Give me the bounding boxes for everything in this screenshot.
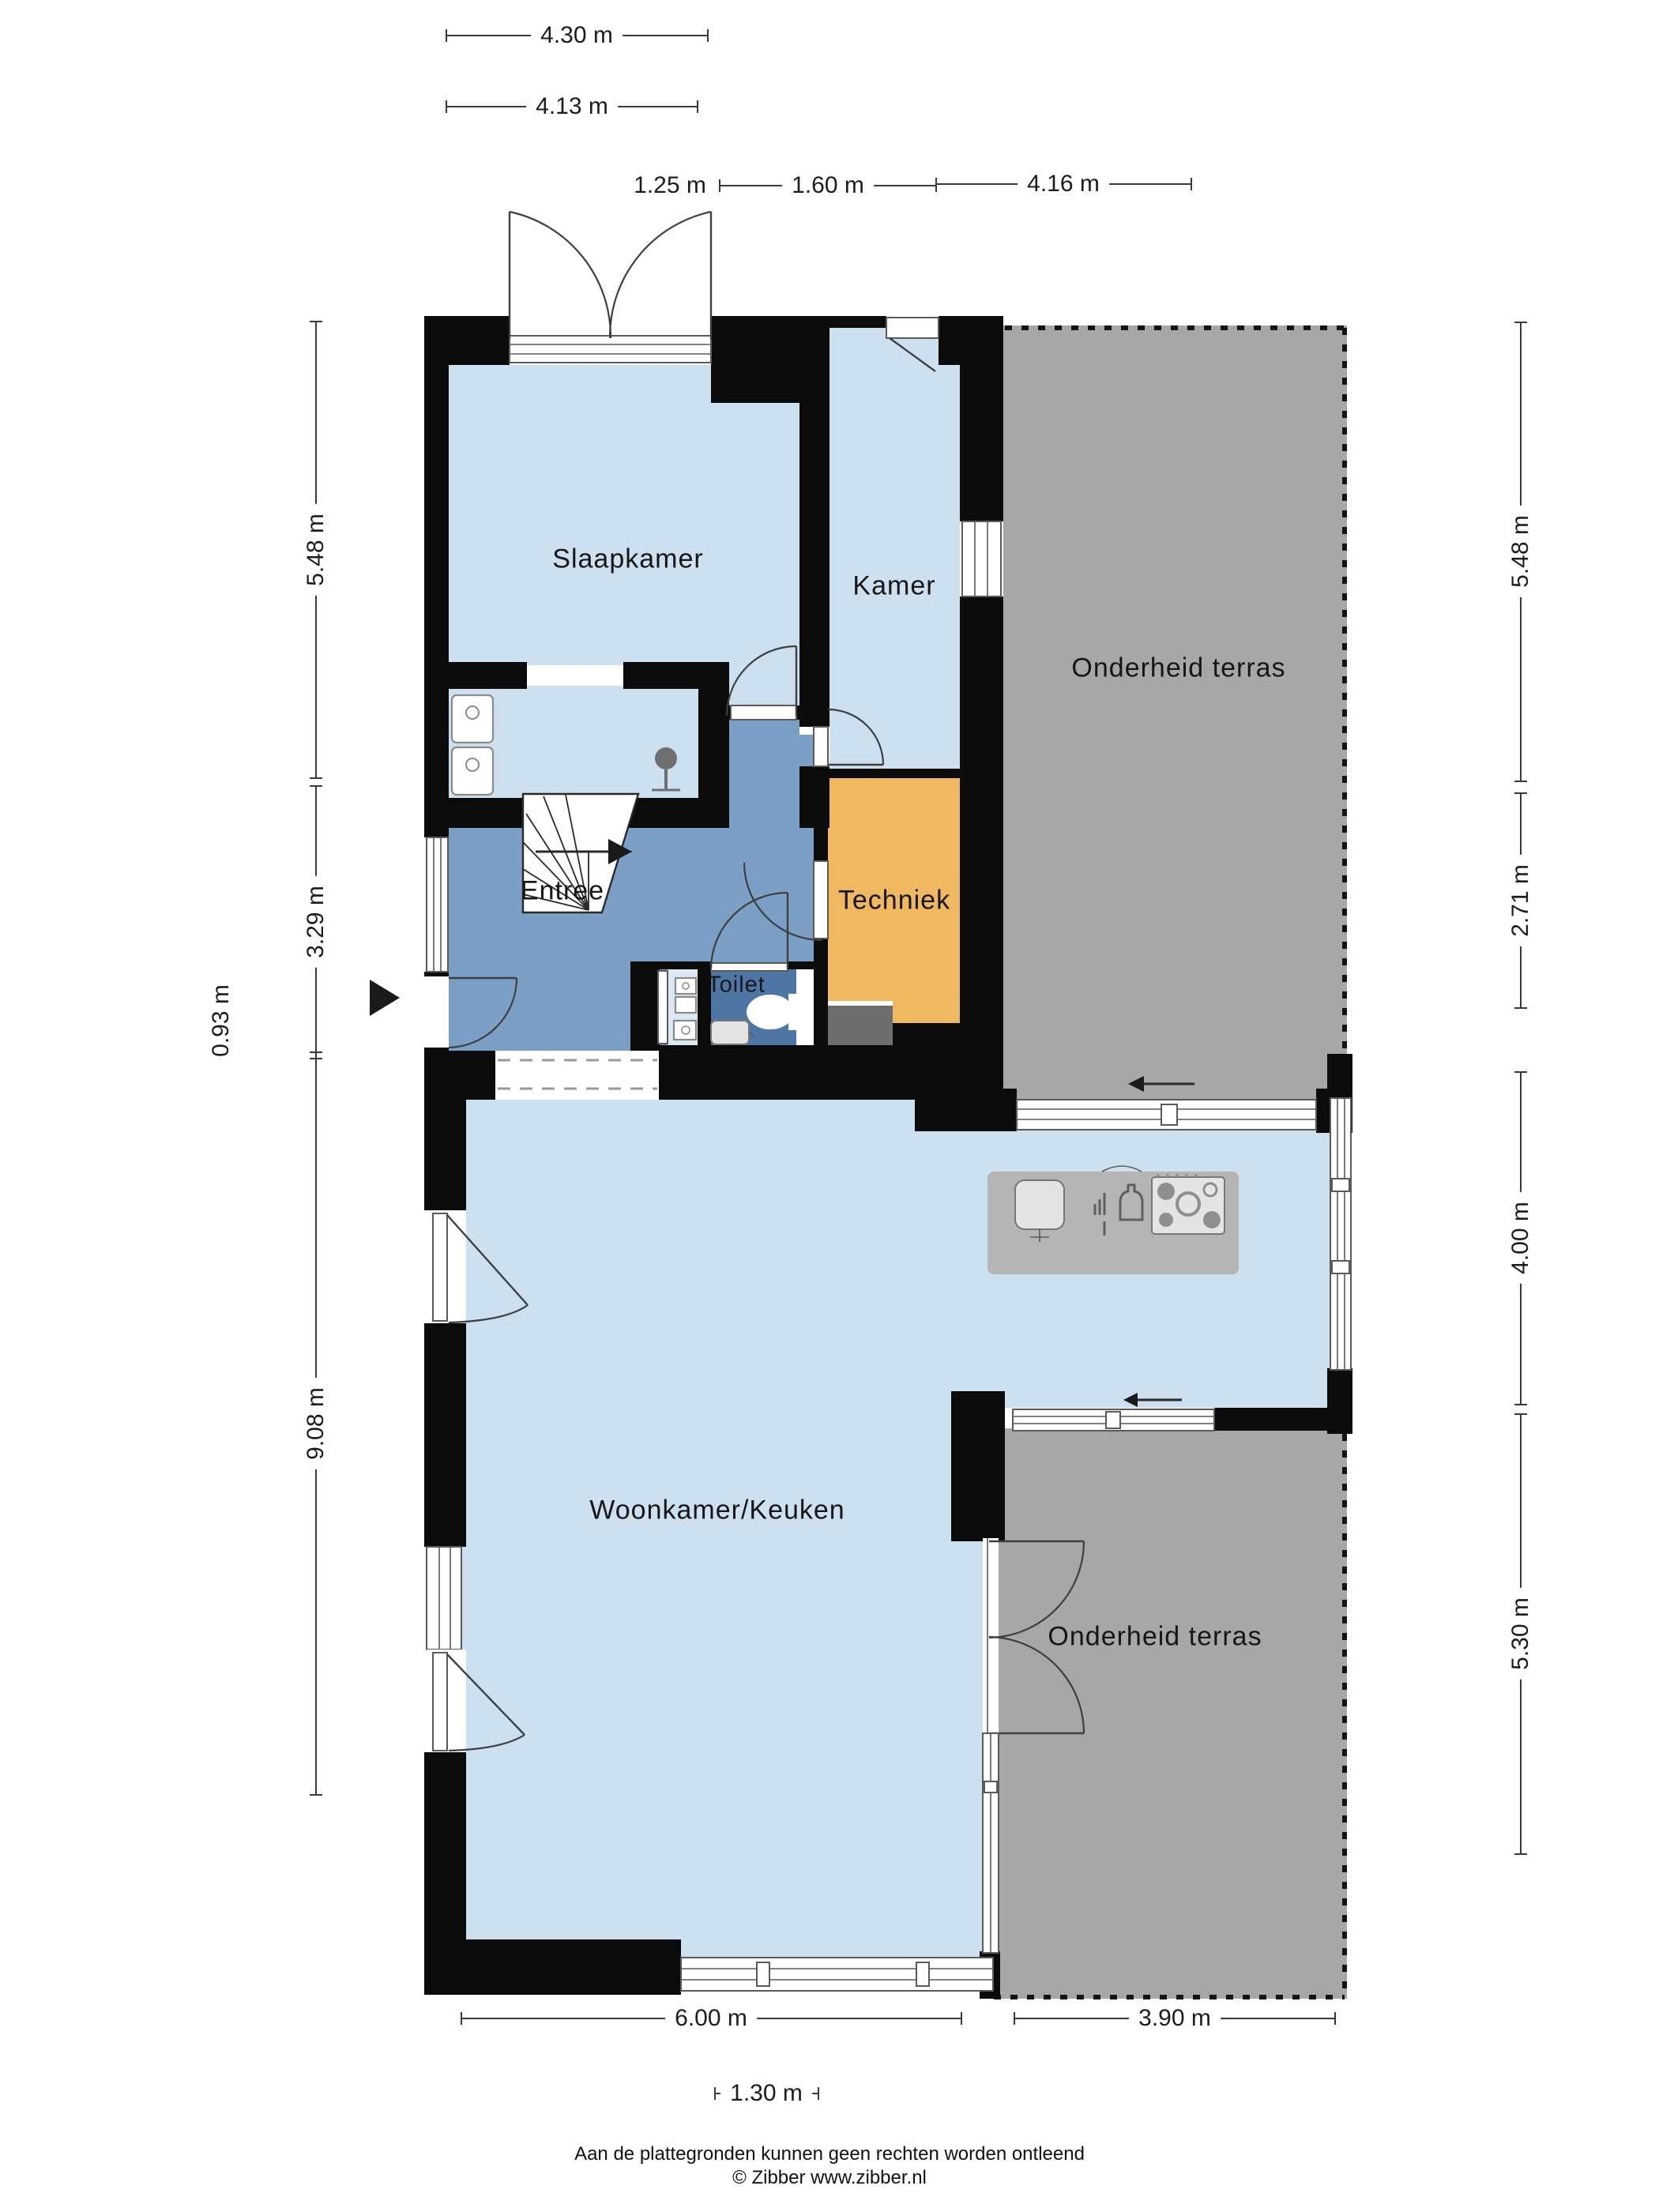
- room-label-entree: Entree: [521, 876, 604, 907]
- window-woonkamer-right: [1330, 1098, 1351, 1370]
- dim-label-548-right: 5.48 m: [1507, 506, 1535, 597]
- french-door-slaapkamer: [510, 212, 711, 363]
- window-woonkamer-left: [427, 1547, 461, 1650]
- dim-label-530: 5.30 m: [1507, 1588, 1535, 1680]
- door-meterkast: [658, 971, 668, 1044]
- sliding-door-lower: [1013, 1409, 1214, 1431]
- window-kamer-right: [962, 521, 1001, 596]
- room-label-terras-boven: Onderheid terras: [1071, 653, 1285, 684]
- dim-label-130: 1.30 m: [720, 2079, 812, 2108]
- dim-label-125: 1.25 m: [624, 171, 716, 200]
- terrace-lower: [994, 1428, 1347, 1999]
- room-label-terras-onder: Onderheid terras: [1048, 1622, 1262, 1653]
- room-label-techniek: Techniek: [838, 886, 950, 916]
- dim-label-413: 4.13 m: [526, 92, 618, 121]
- entrance-arrow-icon: [370, 980, 400, 1016]
- window-entree-left: [427, 837, 448, 972]
- dim-label-600: 6.00 m: [665, 2004, 757, 2033]
- dim-label-400: 4.00 m: [1507, 1192, 1535, 1284]
- floorplan-page: Slaapkamer Kamer Entree Techniek Toilet …: [0, 0, 1659, 2212]
- dim-label-548-left: 5.48 m: [302, 504, 330, 596]
- footer-disclaimer: Aan de plattegronden kunnen geen rechten…: [574, 2143, 1085, 2165]
- dim-label-416: 4.16 m: [1018, 170, 1109, 198]
- hob-icon: [1152, 1174, 1224, 1234]
- room-label-woonkamer: Woonkamer/Keuken: [589, 1495, 845, 1526]
- dim-label-908: 9.08 m: [302, 1378, 330, 1469]
- room-label-toilet: Toilet: [707, 972, 766, 999]
- room-kamer-floor: [829, 328, 960, 769]
- dim-label-093: 0.93 m: [207, 975, 235, 1066]
- kitchen-island: [987, 1166, 1239, 1274]
- porch-opening: [495, 1051, 659, 1100]
- room-label-slaapkamer: Slaapkamer: [552, 544, 703, 575]
- sliding-door-top: [1017, 1100, 1316, 1130]
- toilet-sink-icon: [711, 1021, 755, 1044]
- doormat: [828, 1006, 893, 1051]
- dim-label-329: 3.29 m: [302, 876, 330, 968]
- dim-label-160: 1.60 m: [782, 171, 874, 200]
- room-label-kamer: Kamer: [852, 571, 935, 602]
- floorplan-drawing: [0, 0, 1659, 2212]
- toilet-icon: [747, 994, 799, 1030]
- window-terras-left: [983, 1733, 999, 1953]
- window-woonkamer-bottom: [681, 1958, 993, 1991]
- footer-copyright: © Zibber www.zibber.nl: [732, 2167, 927, 2189]
- dim-label-271: 2.71 m: [1507, 855, 1535, 946]
- opening-ensuite: [527, 665, 623, 686]
- dim-label-390: 3.90 m: [1129, 2004, 1221, 2033]
- fusebox-icon: [674, 978, 696, 1040]
- dim-label-430: 4.30 m: [531, 21, 623, 50]
